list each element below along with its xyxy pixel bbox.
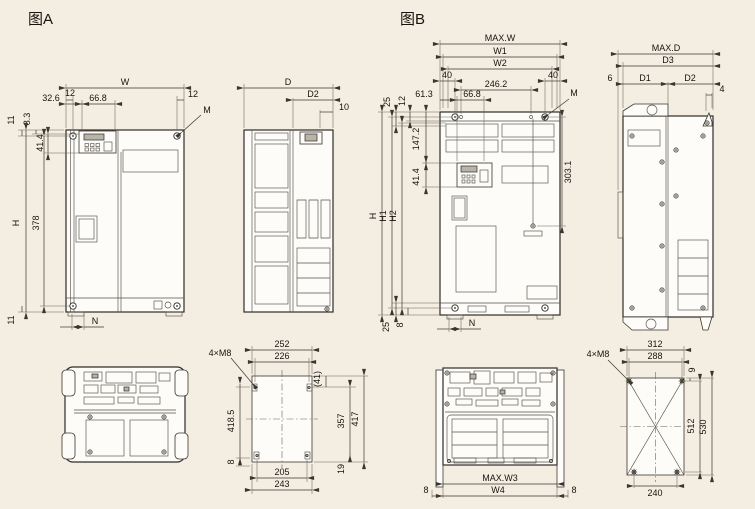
dim-b-66-8: 66.8 [463, 89, 481, 99]
dim-b-maxw3: MAX.W3 [482, 473, 518, 483]
dim-b-12: 12 [397, 96, 407, 106]
dim-b-m: M [570, 88, 578, 98]
dimension-drawing-page: 图A [0, 0, 755, 509]
dim-a-d2: D2 [307, 89, 319, 99]
dim-a-378: 378 [31, 215, 41, 230]
mount-hole [174, 133, 180, 139]
figure-a: 图A [6, 11, 368, 494]
dim-a-8: 8 [226, 459, 236, 464]
dim-b-25-top: 25 [382, 97, 392, 107]
dim-a-11-bottom: 11 [6, 315, 16, 324]
dim-b-512: 512 [686, 418, 696, 433]
dim-a-66-8: 66.8 [89, 93, 107, 103]
figure-b-title: 图B [400, 11, 425, 28]
dim-a-h: H [11, 220, 21, 227]
figure-a-side-view: D D2 10 [244, 77, 349, 312]
dim-b-61-3: 61.3 [415, 89, 433, 99]
dim-b-25-bottom: 25 [381, 322, 391, 332]
dim-b-288: 288 [647, 351, 662, 361]
figure-a-bottom-view [62, 367, 188, 462]
dim-b-9: 9 [687, 367, 697, 372]
dim-b-d1: D1 [639, 73, 651, 83]
dim-a-41: (41) [312, 371, 322, 387]
figure-a-front-view: W 12 12 32.6 66.8 M 11 8.3 41.4 H 378 11 [6, 77, 211, 330]
dim-b-w1: W1 [493, 46, 507, 56]
dim-b-n: N [469, 318, 476, 328]
dim-b-530: 530 [698, 419, 708, 434]
dim-b-41-4: 41.4 [411, 168, 421, 186]
dim-a-226: 226 [274, 351, 289, 361]
technical-drawing-canvas: 图A [0, 0, 755, 509]
dim-a-d: D [285, 77, 292, 87]
figure-b-side-view: MAX.D D3 6 D1 D2 4 [607, 43, 724, 330]
dim-a-11-top: 11 [6, 115, 16, 124]
dim-b-40-right: 40 [548, 70, 558, 80]
dim-b-147-2: 147.2 [411, 128, 421, 151]
dim-b-6: 6 [607, 73, 612, 83]
dim-a-12-right: 12 [188, 89, 198, 99]
dim-a-243: 243 [274, 479, 289, 489]
dim-b-h1: H1 [378, 210, 388, 222]
figure-a-title: 图A [28, 11, 53, 28]
figure-b-bottom-view: MAX.W3 W4 8 8 [423, 368, 576, 498]
dim-b-h: H [368, 213, 378, 220]
figure-b: 图B [368, 11, 725, 498]
dim-b-240: 240 [647, 488, 662, 498]
dim-a-252: 252 [274, 339, 289, 349]
dim-a-19: 19 [336, 464, 346, 474]
dim-b-w2: W2 [493, 58, 507, 68]
dim-b-d3: D3 [662, 55, 674, 65]
dim-a-32-6: 32.6 [42, 93, 60, 103]
dim-b-40-left: 40 [442, 70, 452, 80]
dim-a-w: W [121, 77, 130, 87]
dim-a-417: 417 [350, 411, 360, 426]
dim-a-12-left: 12 [65, 88, 75, 98]
dim-b-maxw: MAX.W [485, 33, 516, 43]
dim-a-418-5: 418.5 [226, 410, 236, 433]
figure-b-front-view: MAX.W W1 W2 40 40 246.2 61.3 66.8 M 25 1… [368, 33, 578, 332]
dim-a-n: N [92, 316, 99, 326]
dim-a-41-4: 41.4 [35, 134, 45, 152]
dim-a-8-3: 8.3 [22, 113, 32, 126]
dim-a-m: M [203, 105, 211, 115]
figure-b-mounting-pattern: 312 288 4×M8 9 512 530 240 [587, 339, 714, 498]
dim-b-312: 312 [647, 339, 662, 349]
dim-b-d2: D2 [684, 73, 696, 83]
dim-b-246-2: 246.2 [485, 79, 508, 89]
dim-b-8: 8 [395, 322, 405, 327]
dim-b-w4: W4 [491, 485, 505, 495]
dim-a-205: 205 [274, 467, 289, 477]
keypad [79, 131, 116, 153]
dim-b-303-1: 303.1 [563, 161, 573, 184]
dim-b-8-right: 8 [571, 485, 576, 495]
dim-a-10: 10 [339, 102, 349, 112]
dim-b-h2: H2 [388, 210, 398, 222]
figure-a-mounting-pattern: 252 226 4×M8 (41) 357 19 417 418.5 8 205… [209, 339, 368, 494]
dim-b-maxd: MAX.D [652, 43, 681, 53]
mount-hole [70, 303, 76, 309]
callout-a-4xm8: 4×M8 [209, 348, 232, 358]
keypad [457, 163, 492, 187]
dim-b-4: 4 [719, 84, 724, 94]
dim-a-357: 357 [336, 413, 346, 428]
dim-b-8-left: 8 [423, 485, 428, 495]
callout-b-4xm8: 4×M8 [587, 349, 610, 359]
mount-hole [174, 303, 180, 309]
